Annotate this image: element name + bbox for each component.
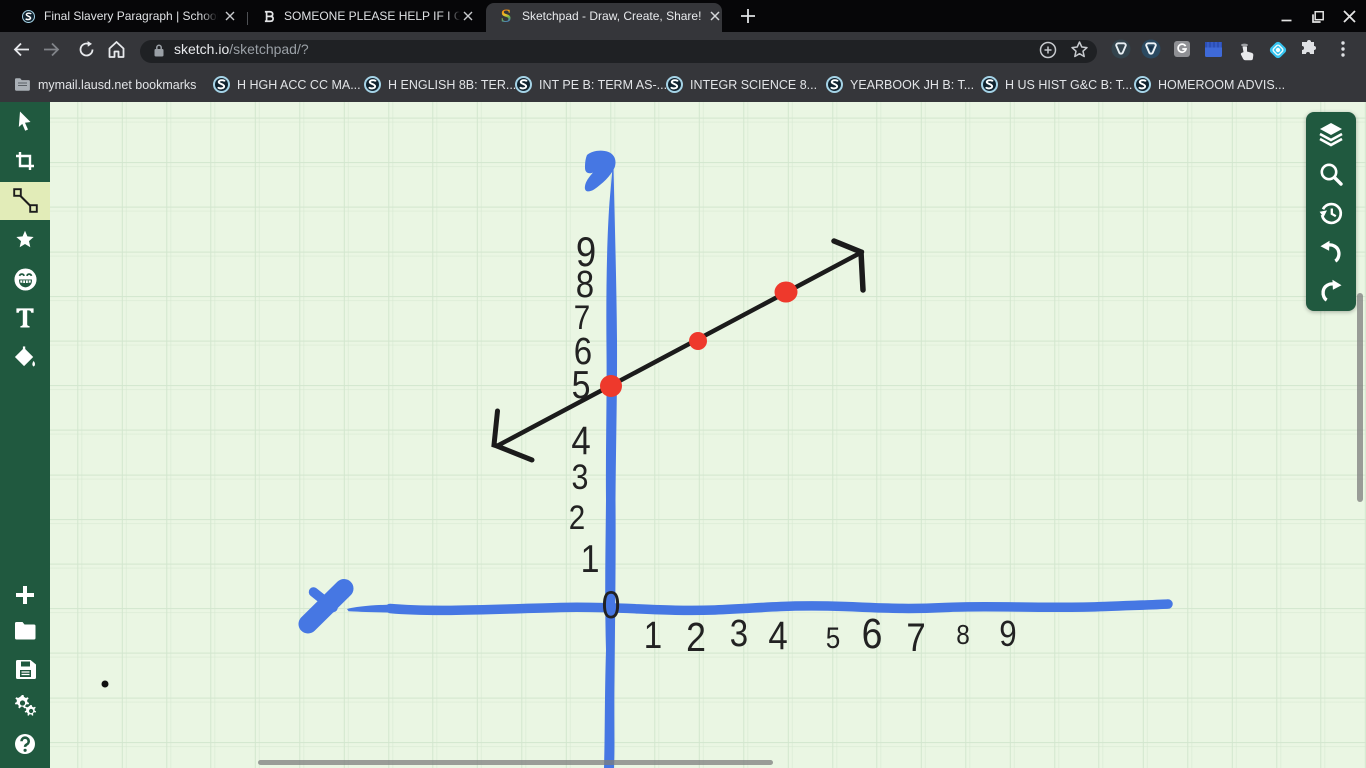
svg-text:2: 2	[686, 615, 706, 661]
svg-text:4: 4	[768, 613, 787, 658]
svg-text:5: 5	[826, 621, 841, 654]
svg-text:1: 1	[581, 537, 600, 581]
svg-text:S: S	[501, 8, 512, 24]
svg-text:4: 4	[571, 418, 590, 463]
svg-text:0: 0	[602, 583, 621, 627]
svg-text:1: 1	[644, 614, 662, 657]
svg-text:7: 7	[906, 615, 925, 660]
svg-text:8: 8	[956, 618, 970, 650]
svg-text:3: 3	[572, 457, 589, 496]
svg-text:2: 2	[569, 498, 585, 536]
svg-text:9: 9	[999, 614, 1016, 655]
svg-text:3: 3	[730, 612, 748, 655]
svg-text:5: 5	[572, 363, 591, 407]
svg-text:6: 6	[862, 610, 883, 658]
